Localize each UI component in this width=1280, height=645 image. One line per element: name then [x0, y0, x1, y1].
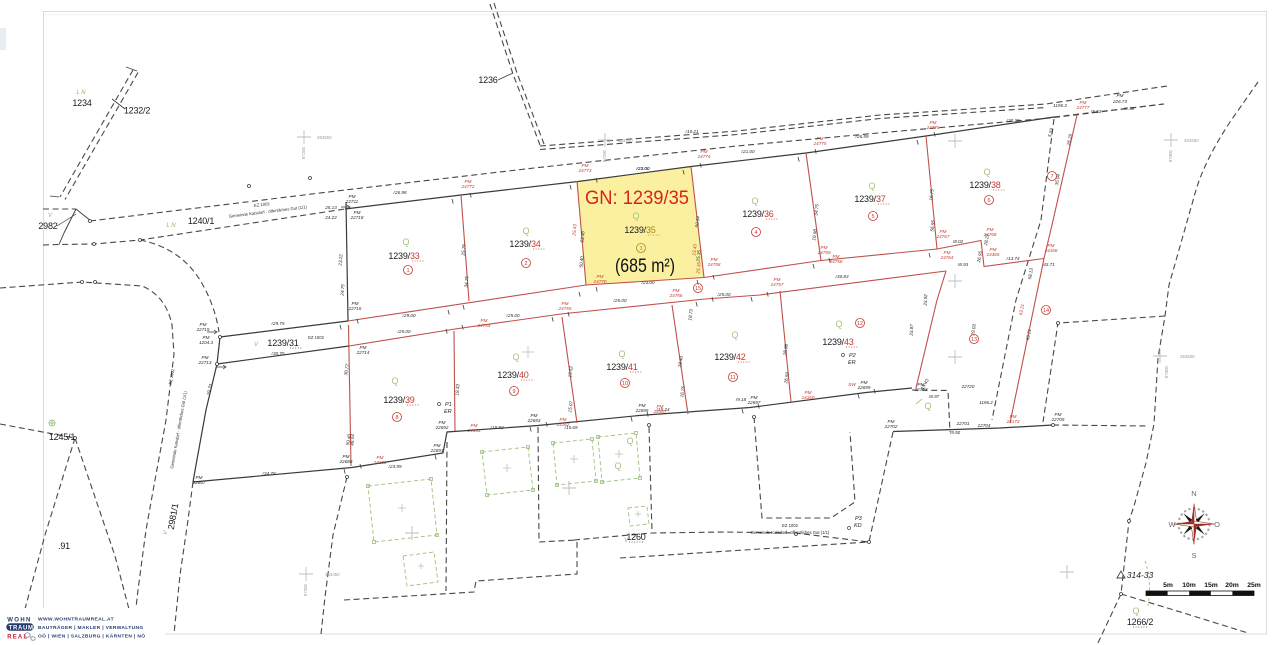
svg-text:r25.00: r25.00 — [613, 298, 626, 303]
svg-text:353450: 353450 — [325, 572, 340, 577]
svg-text:25.13: 25.13 — [324, 205, 337, 210]
svg-text:24163: 24163 — [467, 428, 481, 433]
svg-text:24764: 24764 — [940, 255, 954, 260]
svg-text:TRAUM: TRAUM — [9, 625, 34, 631]
svg-text:22701: 22701 — [956, 421, 970, 426]
svg-text:Q: Q — [522, 226, 529, 236]
svg-text:24774: 24774 — [697, 154, 711, 159]
svg-text:1239/35: 1239/35 — [624, 225, 655, 235]
svg-text:1239/37: 1239/37 — [854, 194, 885, 204]
svg-text:r9.38: r9.38 — [1124, 106, 1135, 111]
svg-text:87200: 87200 — [602, 149, 607, 162]
svg-text:22702: 22702 — [884, 424, 898, 429]
svg-text:12: 12 — [857, 321, 863, 327]
svg-text:24755: 24755 — [558, 306, 572, 311]
svg-text:50.40: 50.40 — [579, 255, 585, 267]
svg-text:r23.00: r23.00 — [636, 166, 649, 171]
svg-text:WWW.WOHNTRAUMREAL.AT: WWW.WOHNTRAUMREAL.AT — [38, 617, 114, 623]
svg-text:r30.29: r30.29 — [1006, 118, 1019, 123]
svg-text:6: 6 — [987, 198, 990, 204]
svg-text:22693: 22693 — [527, 418, 541, 423]
svg-text:24167: 24167 — [653, 409, 667, 414]
svg-text:1240/1: 1240/1 — [188, 216, 215, 226]
svg-text:1: 1 — [406, 268, 409, 274]
svg-text:r8.93: r8.93 — [958, 262, 969, 267]
svg-text:25m: 25m — [1247, 582, 1261, 589]
svg-text:Q: Q — [402, 237, 409, 247]
svg-text:KD: KD — [854, 523, 862, 529]
svg-text:(685 m²): (685 m²) — [615, 256, 675, 277]
svg-text:SW: SW — [848, 382, 856, 387]
svg-text:GN: 1239/35: GN: 1239/35 — [585, 187, 689, 209]
svg-text:1260: 1260 — [626, 532, 645, 542]
svg-text:r25.00: r25.00 — [397, 329, 410, 334]
svg-text:22687: 22687 — [192, 480, 206, 485]
svg-text:Q: Q — [626, 436, 633, 446]
svg-text:S: S — [1191, 551, 1196, 560]
svg-text:1239/34: 1239/34 — [509, 239, 540, 249]
svg-text:Q: Q — [632, 211, 639, 221]
svg-text:Q: Q — [868, 181, 875, 191]
svg-text:23.87: 23.87 — [909, 324, 915, 337]
svg-text:353550: 353550 — [317, 135, 332, 140]
svg-text:23.22: 23.22 — [338, 254, 344, 267]
svg-text:24758: 24758 — [829, 259, 843, 264]
svg-text:2: 2 — [524, 261, 527, 267]
svg-text:r25.00: r25.00 — [506, 313, 519, 318]
svg-text:24770: 24770 — [593, 279, 607, 284]
svg-text:r15.92: r15.92 — [490, 425, 503, 430]
svg-text:1239/31: 1239/31 — [267, 338, 298, 348]
svg-text:34.75: 34.75 — [464, 275, 470, 287]
svg-text:ER: ER — [444, 409, 452, 415]
svg-text:24.75: 24.75 — [340, 284, 346, 297]
svg-text:22697: 22697 — [747, 400, 761, 405]
svg-text:22714: 22714 — [356, 350, 370, 355]
svg-text:10m: 10m — [1182, 582, 1196, 589]
svg-text:r23.00: r23.00 — [641, 280, 654, 285]
svg-text:1266/2: 1266/2 — [1127, 617, 1154, 627]
svg-text:7: 7 — [1050, 174, 1053, 180]
svg-text:r25.00: r25.00 — [717, 292, 730, 297]
svg-text:PM: PM — [1117, 93, 1124, 98]
svg-text:22715: 22715 — [196, 327, 210, 332]
svg-text:r23.99: r23.99 — [388, 464, 401, 469]
svg-text:24776: 24776 — [926, 125, 940, 130]
svg-text:226.73: 226.73 — [1112, 99, 1127, 104]
svg-text:1239/33: 1239/33 — [388, 251, 419, 261]
svg-text:r21.00: r21.00 — [741, 149, 754, 154]
svg-text:Q: Q — [512, 352, 519, 362]
svg-text:N: N — [1191, 489, 1196, 498]
svg-text:r29.00: r29.00 — [402, 313, 415, 318]
svg-text:2982: 2982 — [38, 221, 57, 231]
svg-text:22692: 22692 — [435, 425, 449, 430]
svg-text:87900: 87900 — [1164, 365, 1169, 378]
svg-text:1239/38: 1239/38 — [969, 180, 1000, 190]
svg-text:24162: 24162 — [556, 422, 570, 427]
svg-text:P2: P2 — [849, 353, 856, 359]
svg-text:Q: Q — [1132, 606, 1139, 616]
svg-text:353550: 353550 — [1184, 138, 1199, 143]
svg-text:18.33: 18.33 — [455, 383, 461, 395]
svg-text:OÖ | WIEN | SALZBURG | KÄRNTEN: OÖ | WIEN | SALZBURG | KÄRNTEN | NÖ — [38, 633, 145, 640]
svg-text:O: O — [1214, 520, 1220, 529]
svg-text:Gemeinde Katsdorf - öffentlich: Gemeinde Katsdorf - öffentliches Gut (1/… — [751, 530, 830, 535]
svg-text:4: 4 — [754, 230, 757, 236]
svg-text:r26.99: r26.99 — [855, 134, 868, 139]
svg-text:24758: 24758 — [707, 262, 721, 267]
svg-text:1234: 1234 — [72, 98, 91, 108]
svg-text:Q: Q — [983, 167, 990, 177]
svg-text:Q: Q — [731, 330, 738, 340]
svg-text:314-33: 314-33 — [1127, 570, 1154, 580]
svg-text:22699: 22699 — [857, 385, 871, 390]
svg-text:r9.18: r9.18 — [736, 397, 747, 402]
svg-text:r34.78: r34.78 — [262, 471, 275, 476]
svg-text:10: 10 — [622, 381, 628, 387]
svg-text:15m: 15m — [1204, 582, 1218, 589]
svg-text:20m: 20m — [1225, 582, 1239, 589]
svg-text:r9.50: r9.50 — [950, 430, 961, 435]
svg-text:r29.75: r29.75 — [271, 321, 284, 326]
svg-text:W: W — [1168, 520, 1176, 529]
svg-text:24151: 24151 — [373, 460, 387, 465]
svg-text:3: 3 — [639, 246, 642, 252]
svg-text:24.22: 24.22 — [324, 215, 337, 220]
svg-text:1239/40: 1239/40 — [497, 370, 528, 380]
svg-text:23.92: 23.92 — [923, 294, 929, 307]
svg-text:r10.21: r10.21 — [685, 129, 698, 134]
svg-text:ER: ER — [848, 360, 856, 366]
svg-text:22711: 22711 — [345, 199, 359, 204]
svg-text:1245/1: 1245/1 — [49, 432, 76, 442]
svg-text:11: 11 — [730, 375, 736, 381]
svg-text:24160: 24160 — [801, 395, 815, 400]
svg-text:24759: 24759 — [817, 250, 831, 255]
svg-text:22705: 22705 — [1051, 417, 1065, 422]
svg-text:1239/42: 1239/42 — [714, 352, 745, 362]
svg-text:22718: 22718 — [350, 215, 364, 220]
svg-text:L N: L N — [166, 223, 176, 229]
svg-text:24754: 24754 — [477, 323, 491, 328]
svg-text:BAUTRÄGER | MAKLER | VERWALTUN: BAUTRÄGER | MAKLER | VERWALTUNG — [38, 624, 144, 631]
svg-text:24757: 24757 — [770, 282, 784, 287]
svg-text:24773: 24773 — [578, 168, 592, 173]
svg-text:22704: 22704 — [977, 423, 991, 428]
svg-text:r13.74: r13.74 — [1006, 256, 1019, 261]
svg-text:EZ 1002: EZ 1002 — [782, 523, 799, 528]
svg-text:5m: 5m — [1163, 582, 1173, 589]
svg-text:P3: P3 — [855, 516, 863, 522]
svg-text:24775: 24775 — [813, 141, 827, 146]
svg-text:5: 5 — [871, 214, 874, 220]
svg-text:8: 8 — [395, 415, 398, 421]
svg-text:1239/39: 1239/39 — [383, 395, 414, 405]
svg-text:87900: 87900 — [1168, 149, 1173, 162]
svg-text:9: 9 — [512, 389, 515, 395]
svg-text:L N: L N — [76, 90, 86, 96]
svg-text:13: 13 — [971, 337, 977, 343]
svg-text:35350K: 35350K — [1180, 354, 1195, 359]
svg-text:1204.3: 1204.3 — [199, 340, 213, 345]
svg-text:43.71: 43.71 — [1043, 262, 1055, 267]
svg-text:1196.3: 1196.3 — [1053, 103, 1067, 108]
svg-text:r8.02: r8.02 — [953, 239, 964, 244]
svg-text:24173: 24173 — [1006, 419, 1020, 424]
svg-text:r26.98: r26.98 — [393, 190, 406, 195]
svg-text:22691: 22691 — [430, 448, 444, 453]
svg-text:22720: 22720 — [961, 384, 975, 389]
svg-text:.91: .91 — [58, 541, 70, 551]
svg-text:24756: 24756 — [669, 293, 683, 298]
svg-text:Q: Q — [924, 401, 931, 411]
svg-text:24772: 24772 — [461, 184, 475, 189]
svg-text:24365: 24365 — [986, 252, 1000, 257]
svg-text:r30.83: r30.83 — [835, 274, 848, 279]
svg-text:r8.97: r8.97 — [929, 394, 940, 399]
svg-text:22716: 22716 — [348, 306, 362, 311]
svg-text:1236: 1236 — [478, 75, 497, 85]
svg-text:Q: Q — [751, 196, 758, 206]
svg-text:53.38: 53.38 — [580, 230, 586, 242]
svg-text:Q: Q — [835, 319, 842, 329]
svg-text:22688: 22688 — [339, 459, 353, 464]
svg-text:14: 14 — [1043, 308, 1049, 314]
svg-text:Q: Q — [391, 376, 398, 386]
svg-text:r5.53: r5.53 — [1091, 109, 1102, 114]
svg-text:22695: 22695 — [635, 408, 649, 413]
svg-text:WOHN: WOHN — [7, 618, 32, 624]
svg-text:22713: 22713 — [198, 360, 212, 365]
svg-text:1239/41: 1239/41 — [606, 362, 637, 372]
svg-text:Q: Q — [614, 461, 621, 471]
svg-text:1239/36: 1239/36 — [742, 209, 773, 219]
svg-text:1232/2: 1232/2 — [124, 106, 151, 116]
svg-text:r30.75: r30.75 — [271, 351, 284, 356]
svg-text:EZ 1002: EZ 1002 — [308, 335, 325, 340]
svg-text:24777: 24777 — [1076, 105, 1090, 110]
svg-text:24767: 24767 — [936, 234, 950, 239]
svg-text:1196.2: 1196.2 — [979, 400, 993, 405]
svg-text:15: 15 — [695, 286, 701, 292]
svg-text:24168: 24168 — [1044, 248, 1058, 253]
svg-text:87200: 87200 — [301, 146, 306, 159]
svg-text:353550: 353550 — [618, 138, 633, 143]
svg-text:1239/43: 1239/43 — [822, 337, 853, 347]
svg-text:P1: P1 — [445, 402, 452, 408]
svg-text:Q: Q — [618, 349, 625, 359]
svg-text:87300: 87300 — [303, 583, 308, 596]
